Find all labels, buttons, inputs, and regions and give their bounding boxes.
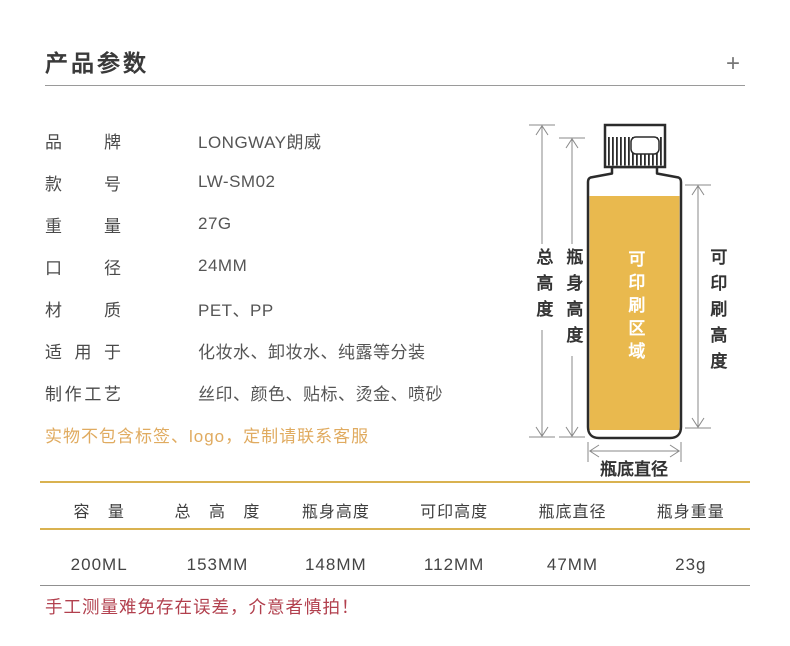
- parameter-value: PET、PP: [198, 296, 274, 321]
- parameter-value: 丝印、颜色、贴标、烫金、喷砂: [198, 380, 443, 405]
- parameter-row: 制作工艺丝印、颜色、贴标、烫金、喷砂: [45, 371, 443, 413]
- spec-table-header-cell: 容 量: [40, 496, 158, 524]
- cap-thumb-notch: [631, 137, 659, 154]
- parameter-label: 款号: [45, 170, 121, 195]
- spec-table-header-row: 容 量总 高 度瓶身高度可印高度瓶底直径瓶身重量: [40, 496, 750, 524]
- header-divider: [45, 85, 745, 86]
- parameter-label: 重量: [45, 212, 121, 237]
- expand-plus-icon[interactable]: +: [726, 52, 740, 76]
- spec-table-value-cell: 153MM: [158, 551, 276, 579]
- bottom-diameter-label: 瓶底直径: [584, 455, 684, 480]
- total-height-label: 总高度: [532, 244, 552, 330]
- customization-note: 实物不包含标签、logo，定制请联系客服: [45, 422, 369, 447]
- body-height-label: 瓶身高度: [562, 244, 582, 356]
- table-mid-border: [40, 528, 750, 530]
- parameter-row: 品牌LONGWAY朗威: [45, 119, 443, 161]
- bottle-diagram: 总高度 瓶身高度 可印刷区域 可印刷高度 瓶底直径: [520, 110, 770, 482]
- spec-table-value-row: 200ML153MM148MM112MM47MM23g: [40, 551, 750, 579]
- spec-table-value-cell: 148MM: [277, 551, 395, 579]
- parameter-row: 款号LW-SM02: [45, 161, 443, 203]
- spec-table-header-cell: 瓶身高度: [277, 496, 395, 524]
- spec-table-header-cell: 瓶底直径: [513, 496, 631, 524]
- page-title: 产品参数: [45, 44, 149, 78]
- parameter-row: 适用于化妆水、卸妆水、纯露等分装: [45, 329, 443, 371]
- parameter-label: 品牌: [45, 128, 121, 153]
- spec-table-value-cell: 200ML: [40, 551, 158, 579]
- printable-area-label: 可印刷区域: [624, 250, 644, 365]
- spec-table-value-cell: 23g: [632, 551, 750, 579]
- parameter-value: 27G: [198, 214, 232, 234]
- parameter-label: 适用于: [45, 338, 121, 363]
- bottle-diagram-svg: [520, 110, 770, 482]
- table-bottom-border: [40, 585, 750, 586]
- spec-table-header-cell: 可印高度: [395, 496, 513, 524]
- parameter-row: 重量27G: [45, 203, 443, 245]
- parameter-value: 24MM: [198, 256, 247, 276]
- parameter-value: LONGWAY朗威: [198, 128, 322, 153]
- spec-table-header-cell: 总 高 度: [158, 496, 276, 524]
- spec-table-header-cell: 瓶身重量: [632, 496, 750, 524]
- parameter-label: 制作工艺: [45, 380, 121, 405]
- product-parameters-panel: 产品参数 + 品牌LONGWAY朗威款号LW-SM02重量27G口径24MM材质…: [0, 0, 790, 646]
- parameter-value: LW-SM02: [198, 172, 276, 192]
- table-top-border: [40, 481, 750, 483]
- parameter-row: 材质PET、PP: [45, 287, 443, 329]
- parameter-label: 口径: [45, 254, 121, 279]
- parameter-value: 化妆水、卸妆水、纯露等分装: [198, 338, 426, 363]
- parameter-label: 材质: [45, 296, 121, 321]
- spec-table-value-cell: 47MM: [513, 551, 631, 579]
- disclaimer-text: 手工测量难免存在误差，介意者慎拍！: [45, 594, 360, 619]
- printable-height-label: 可印刷高度: [706, 248, 726, 378]
- parameter-list: 品牌LONGWAY朗威款号LW-SM02重量27G口径24MM材质PET、PP适…: [45, 119, 443, 413]
- spec-table-value-cell: 112MM: [395, 551, 513, 579]
- parameter-row: 口径24MM: [45, 245, 443, 287]
